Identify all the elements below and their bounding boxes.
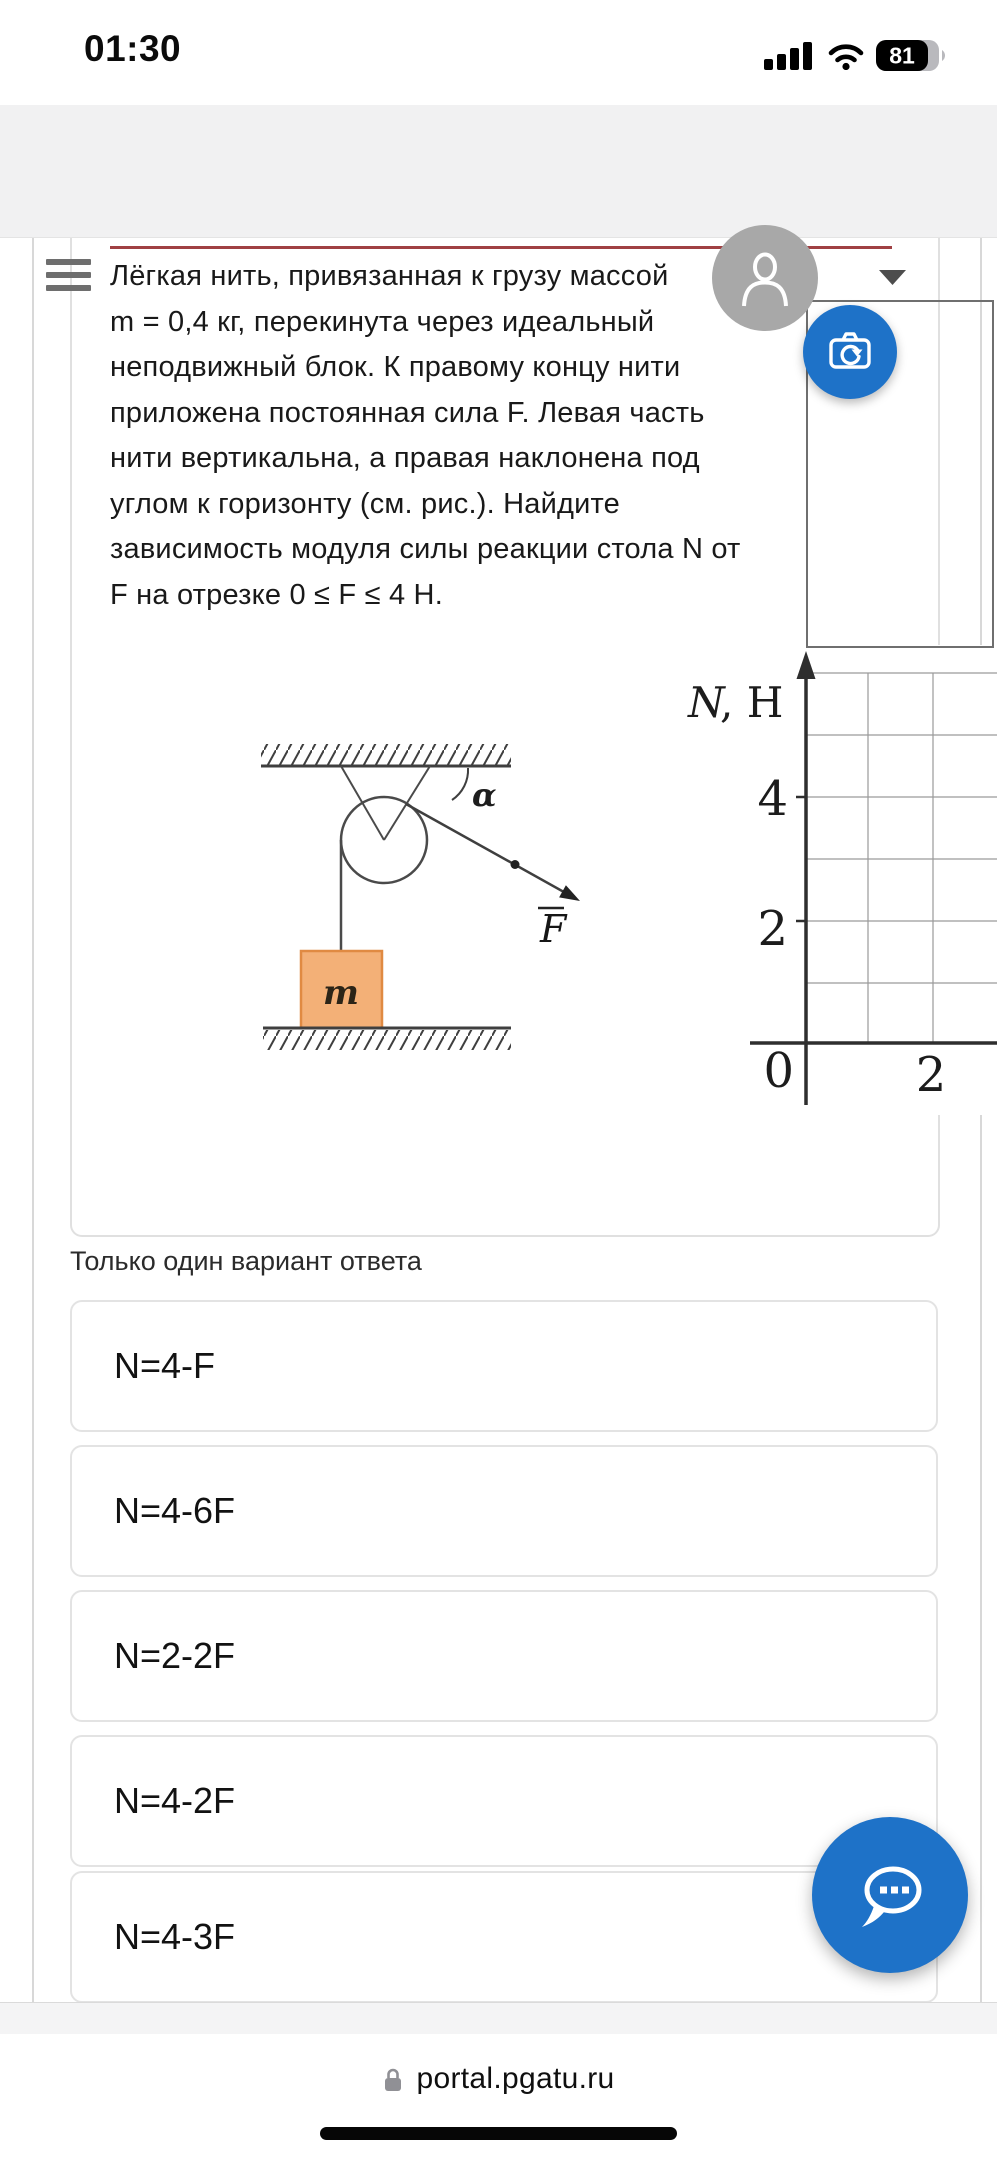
question-line: нити вертикальна, а правая наклонена под [110, 436, 920, 482]
question-line: неподвижный блок. К правому концу нити [110, 345, 920, 391]
lock-icon [383, 2066, 403, 2093]
y-tick-2: 2 [757, 901, 788, 957]
battery-percent: 81 [889, 43, 915, 69]
option-label: N=4-F [114, 1345, 215, 1387]
chat-button[interactable] [812, 1817, 968, 1973]
floor-hatch [263, 1030, 511, 1050]
person-icon [733, 246, 797, 310]
url-label: portal.pgatu.ru [417, 2062, 615, 2096]
mass-label: m [323, 973, 359, 1013]
force-label: F [539, 907, 568, 951]
address-bar[interactable]: portal.pgatu.ru [0, 2062, 997, 2096]
option-card[interactable]: N=4-F [70, 1300, 938, 1432]
option-card[interactable]: N=4-3F [70, 1871, 938, 2003]
page-container-left-border [32, 237, 34, 2002]
wifi-icon [826, 40, 866, 70]
chevron-down-icon[interactable] [879, 270, 906, 285]
alpha-label: α [472, 776, 497, 814]
browser-bar: portal.pgatu.ru [0, 2034, 997, 2160]
option-label: N=4-6F [114, 1490, 235, 1532]
graph: N , Н 4 2 0 2 [680, 645, 997, 1115]
question-line: зависимость модуля силы реакции стола N … [110, 527, 920, 573]
avatar[interactable] [712, 225, 818, 331]
option-label: N=2-2F [114, 1635, 235, 1677]
camera-rescan-icon [824, 326, 876, 378]
x-tick-2: 2 [916, 1047, 947, 1103]
camera-button[interactable] [803, 305, 897, 399]
status-bar: 01:30 81 [0, 0, 997, 105]
option-card[interactable]: N=4-6F [70, 1445, 938, 1577]
angle-arc [452, 768, 468, 800]
question-line: углом к горизонту (см. рис.). Найдите [110, 482, 920, 528]
ceiling-hatch [261, 744, 511, 765]
option-card[interactable]: N=4-2F [70, 1735, 938, 1867]
page-footer-band [0, 2002, 997, 2036]
battery-icon: 81 [876, 39, 948, 72]
option-label: N=4-3F [114, 1916, 235, 1958]
option-card[interactable]: N=2-2F [70, 1590, 938, 1722]
option-label: N=4-2F [114, 1780, 235, 1822]
question-line: приложена постоянная сила F. Левая часть [110, 391, 920, 437]
y-tick-4: 4 [757, 771, 788, 827]
chat-icon [848, 1853, 932, 1937]
menu-icon[interactable] [46, 259, 92, 293]
app-header [0, 105, 997, 238]
home-indicator[interactable] [320, 2127, 677, 2140]
answer-variant-label: Только один вариант ответа [70, 1246, 422, 1277]
y-axis-title-units: , Н [720, 678, 783, 727]
signal-icon [764, 40, 814, 70]
origin-label: 0 [763, 1043, 794, 1099]
question-line: F на отрезке 0 ≤ F ≤ 4 Н. [110, 573, 920, 619]
physics-diagram: α F m [228, 728, 600, 1065]
force-arrowhead [559, 885, 580, 901]
clock-label: 01:30 [84, 28, 181, 70]
